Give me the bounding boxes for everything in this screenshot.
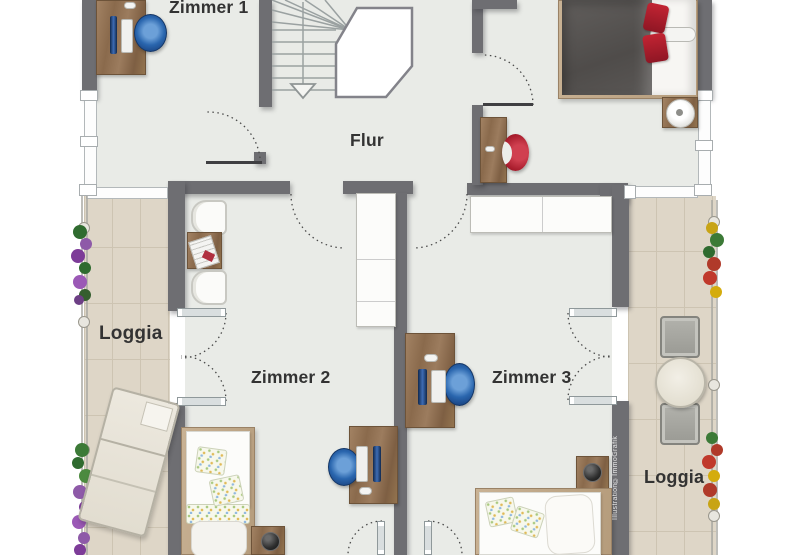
decorative-bowl <box>261 532 280 551</box>
glass-door-loggia-west <box>86 187 168 199</box>
decorative-bowl <box>583 463 602 482</box>
open-door-leaf <box>206 161 262 164</box>
desk-drawer-handle <box>424 354 438 362</box>
wardrobe-zimmer2 <box>356 193 396 327</box>
lounger-fold-line <box>101 438 165 457</box>
keyboard-zimmer2 <box>356 446 368 482</box>
wardrobe-divider <box>357 259 395 260</box>
loggia-chair <box>660 403 700 445</box>
red-shell-chair <box>502 134 529 171</box>
room-label-flur: Flur <box>350 130 384 151</box>
wardrobe-divider <box>542 197 543 232</box>
room-label-zimmer-2: Zimmer 2 <box>251 367 330 388</box>
wall-zimmer2-west-upper <box>168 181 185 311</box>
wall-zimmer3-east-upper <box>612 185 629 307</box>
window-connector <box>80 136 98 147</box>
armchair <box>191 270 227 305</box>
illustrator-credit: Illustration©ImmoGrafik <box>612 401 629 555</box>
lounger-head-pillow <box>140 401 173 431</box>
lounger-fold-line <box>91 474 155 493</box>
room-label-loggia-sued: Loggia <box>644 467 704 488</box>
office-chair-zimmer3 <box>444 363 475 406</box>
wall-outer-right <box>697 0 712 98</box>
bistro-table <box>655 357 706 408</box>
wardrobe-divider <box>357 301 395 302</box>
window-connector <box>624 185 636 199</box>
console-handle <box>485 146 495 152</box>
keyboard-zimmer1 <box>121 19 133 53</box>
floor-plan: Zimmer 1 Flur Loggia Zimmer 2 Zimmer 3 L… <box>0 0 794 555</box>
room-label-zimmer-1: Zimmer 1 <box>169 0 248 18</box>
wall-outer-left <box>82 0 97 98</box>
window-connector <box>79 184 97 196</box>
double-bed-duvet <box>562 0 652 95</box>
window-connector <box>80 90 98 101</box>
room-label-zimmer-3: Zimmer 3 <box>492 367 571 388</box>
door-leaf <box>377 521 385 555</box>
keyboard-zimmer3 <box>431 370 446 403</box>
french-door-leaf <box>177 308 226 317</box>
chair-seat-cutout <box>502 141 512 165</box>
lamp-center-dot <box>676 109 683 116</box>
monitor-zimmer1 <box>110 16 117 54</box>
bed-head-pillow-z3 <box>544 493 596 555</box>
armchair <box>191 200 227 235</box>
red-cushion <box>642 32 669 63</box>
mouse-zimmer2 <box>359 487 372 495</box>
window-connector <box>694 184 712 196</box>
wall-stairwell <box>259 0 272 107</box>
wall-flur-south-a <box>168 181 290 194</box>
window-connector <box>695 140 713 151</box>
glass-door-loggia-sued <box>629 186 698 198</box>
monitor-zimmer2 <box>373 446 381 482</box>
loggia-chair <box>660 316 700 358</box>
french-door-leaf <box>569 308 617 317</box>
floral-cushion <box>194 446 227 476</box>
wall-bedroom-top-stub <box>472 0 517 9</box>
bed-foot-pillow-z2 <box>191 521 247 555</box>
monitor-zimmer3 <box>418 369 427 405</box>
office-chair-zimmer1 <box>134 14 167 52</box>
door-leaf <box>424 521 432 555</box>
french-door-leaf <box>569 396 617 405</box>
open-door-leaf <box>483 103 533 106</box>
room-label-loggia-west: Loggia <box>99 323 162 345</box>
desk-drawer-handle <box>124 2 136 9</box>
french-door-leaf <box>177 397 226 406</box>
wardrobe-zimmer3 <box>470 196 612 233</box>
